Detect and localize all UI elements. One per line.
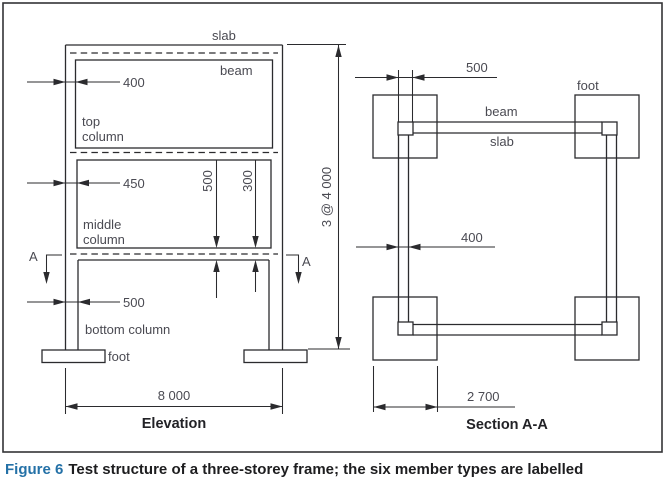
arrow-down-icon [335, 337, 341, 349]
arrow-left-icon [78, 299, 90, 305]
dim-total-height: 3 @ 4 000 [287, 45, 350, 350]
dim-foot-width: 2 700 [374, 366, 516, 412]
dim-foot-width-value: 2 700 [467, 389, 500, 404]
dim-middle-column-width: 450 [27, 176, 145, 191]
section-column-top-left [398, 122, 413, 135]
figure-drawing: 400 450 500 500 300 [0, 0, 670, 458]
arrow-right-icon [54, 79, 66, 85]
section-slab-label: slab [490, 134, 514, 149]
dim-middle-column-width-value: 450 [123, 176, 145, 191]
elevation-middle-column-label-line1: middle [83, 217, 121, 232]
arrow-down-icon [252, 236, 258, 248]
section-beam-top [413, 122, 602, 133]
section-column-bottom-right [602, 322, 617, 335]
section-foot-top-left [373, 95, 437, 158]
section-marker-left-label: A [29, 249, 38, 264]
dim-edge-beam-width-value: 400 [461, 230, 483, 245]
elevation-slab-label: slab [212, 28, 236, 43]
elevation-top-column-label-line1: top [82, 114, 100, 129]
elevation-middle-column-label-line2: column [83, 232, 125, 247]
section-aa-view: 500 400 2 700 foot beam slab Section A-A [355, 60, 639, 433]
dim-top-column-width: 400 [27, 75, 145, 90]
dim-beam-depth-value: 500 [200, 170, 215, 192]
dim-edge-beam-width: 400 [356, 230, 495, 250]
dim-bottom-column-width-value: 500 [123, 295, 145, 310]
elevation-view: 400 450 500 500 300 [27, 28, 350, 432]
dim-corner-column-width-value: 500 [466, 60, 488, 75]
dim-slab-depth-value: 300 [240, 170, 255, 192]
section-marker-right: A [286, 254, 311, 284]
arrow-left-icon [413, 74, 425, 80]
dim-beam-depth: 500 [200, 160, 220, 298]
arrow-down-icon [43, 272, 49, 284]
arrow-right-icon [387, 74, 399, 80]
section-column-bottom-left [398, 322, 413, 335]
figure-caption-label: Figure 6 [5, 461, 63, 478]
arrow-right-icon [54, 180, 66, 186]
section-foot-bottom-left [373, 297, 437, 360]
section-beam-bottom [413, 325, 602, 336]
elevation-bottom-column-label: bottom column [85, 322, 170, 337]
arrow-right-icon [387, 244, 399, 250]
elevation-foot-label: foot [108, 349, 130, 364]
arrow-left-icon [409, 244, 421, 250]
section-foot-label: foot [577, 78, 599, 93]
arrow-left-icon [66, 403, 78, 409]
dim-bottom-column-width: 500 [27, 295, 145, 310]
arrow-left-icon [76, 79, 88, 85]
arrow-left-icon [374, 404, 386, 410]
section-column-top-right [602, 122, 617, 135]
section-beam-label: beam [485, 104, 518, 119]
arrow-up-icon [335, 45, 341, 57]
dim-bay-width: 8 000 [66, 368, 283, 414]
elevation-title: Elevation [142, 416, 206, 432]
dim-slab-depth: 300 [240, 160, 259, 292]
section-beam-left [399, 135, 409, 322]
elevation-left-foot [42, 350, 105, 363]
dim-total-height-value: 3 @ 4 000 [319, 167, 334, 227]
dim-bay-width-value: 8 000 [158, 388, 191, 403]
arrow-left-icon [77, 180, 89, 186]
figure-caption-text: Test structure of a three-storey frame; … [68, 461, 583, 478]
arrow-right-icon [271, 403, 283, 409]
arrow-up-icon [252, 260, 258, 272]
section-beam-right [607, 135, 617, 322]
dim-corner-column-width: 500 [355, 60, 497, 81]
section-marker-right-label: A [302, 254, 311, 269]
dim-top-column-width-value: 400 [123, 75, 145, 90]
elevation-top-column-label-line2: column [82, 129, 124, 144]
elevation-beam-label: beam [220, 63, 253, 78]
figure-caption: Figure 6Test structure of a three-storey… [5, 461, 583, 478]
arrow-right-icon [426, 404, 438, 410]
section-aa-title: Section A-A [466, 417, 548, 433]
arrow-right-icon [54, 299, 66, 305]
arrow-up-icon [213, 260, 219, 272]
elevation-frame-outline [66, 45, 283, 350]
elevation-right-foot [244, 350, 307, 363]
arrow-down-icon [213, 236, 219, 248]
section-marker-left: A [29, 249, 62, 284]
arrow-down-icon [295, 272, 301, 284]
